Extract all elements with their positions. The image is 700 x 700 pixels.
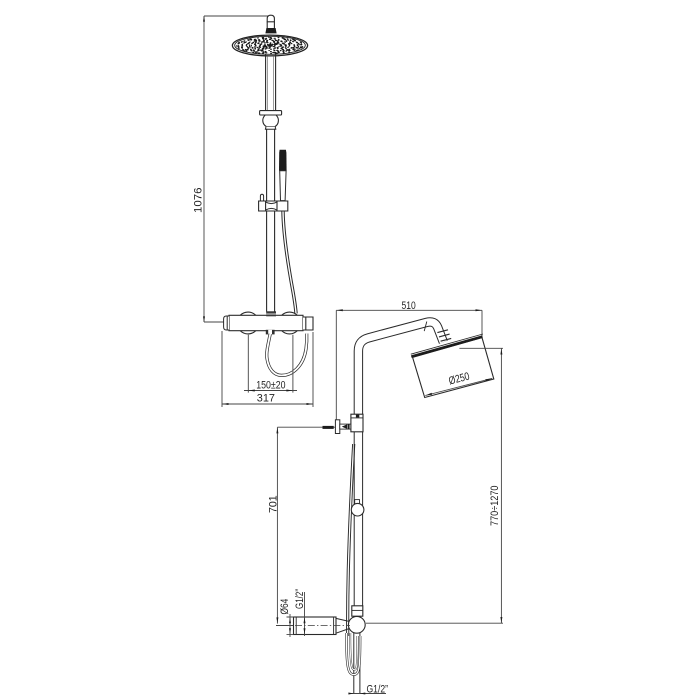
svg-text:510: 510: [402, 300, 416, 312]
svg-text:Ø64: Ø64: [279, 599, 291, 615]
svg-text:G1/2”: G1/2”: [294, 589, 306, 609]
svg-text:1076: 1076: [193, 188, 205, 214]
svg-text:G1/2”: G1/2”: [367, 683, 389, 695]
svg-text:317: 317: [257, 392, 275, 404]
svg-text:770÷1270: 770÷1270: [489, 486, 501, 527]
svg-text:150±20: 150±20: [256, 380, 285, 392]
svg-text:701: 701: [267, 495, 279, 513]
